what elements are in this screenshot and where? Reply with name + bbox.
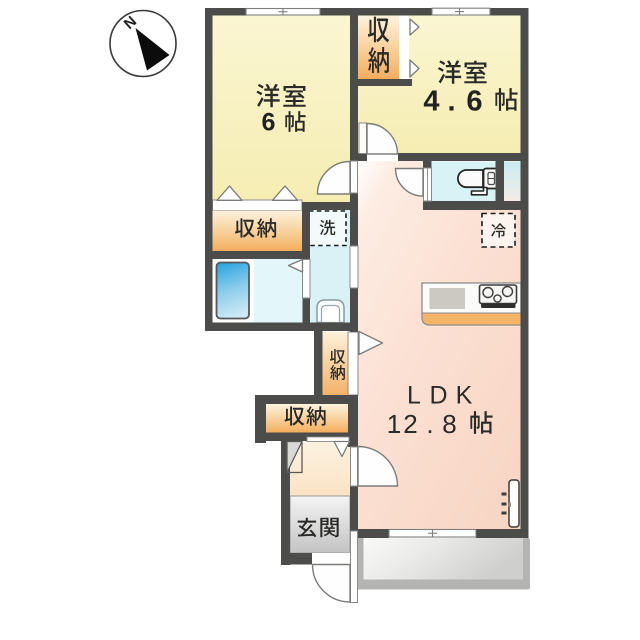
svg-text:1: 1 (387, 409, 401, 439)
svg-text:K: K (456, 381, 473, 409)
svg-text:6: 6 (466, 86, 482, 118)
svg-text:4: 4 (423, 86, 439, 118)
svg-text:.: . (447, 86, 455, 118)
svg-text:.: . (426, 409, 433, 439)
svg-text:L: L (407, 381, 421, 409)
svg-text:D: D (429, 381, 447, 409)
svg-text:6: 6 (262, 109, 276, 137)
svg-text:8: 8 (442, 409, 456, 439)
svg-text:2: 2 (403, 409, 417, 439)
